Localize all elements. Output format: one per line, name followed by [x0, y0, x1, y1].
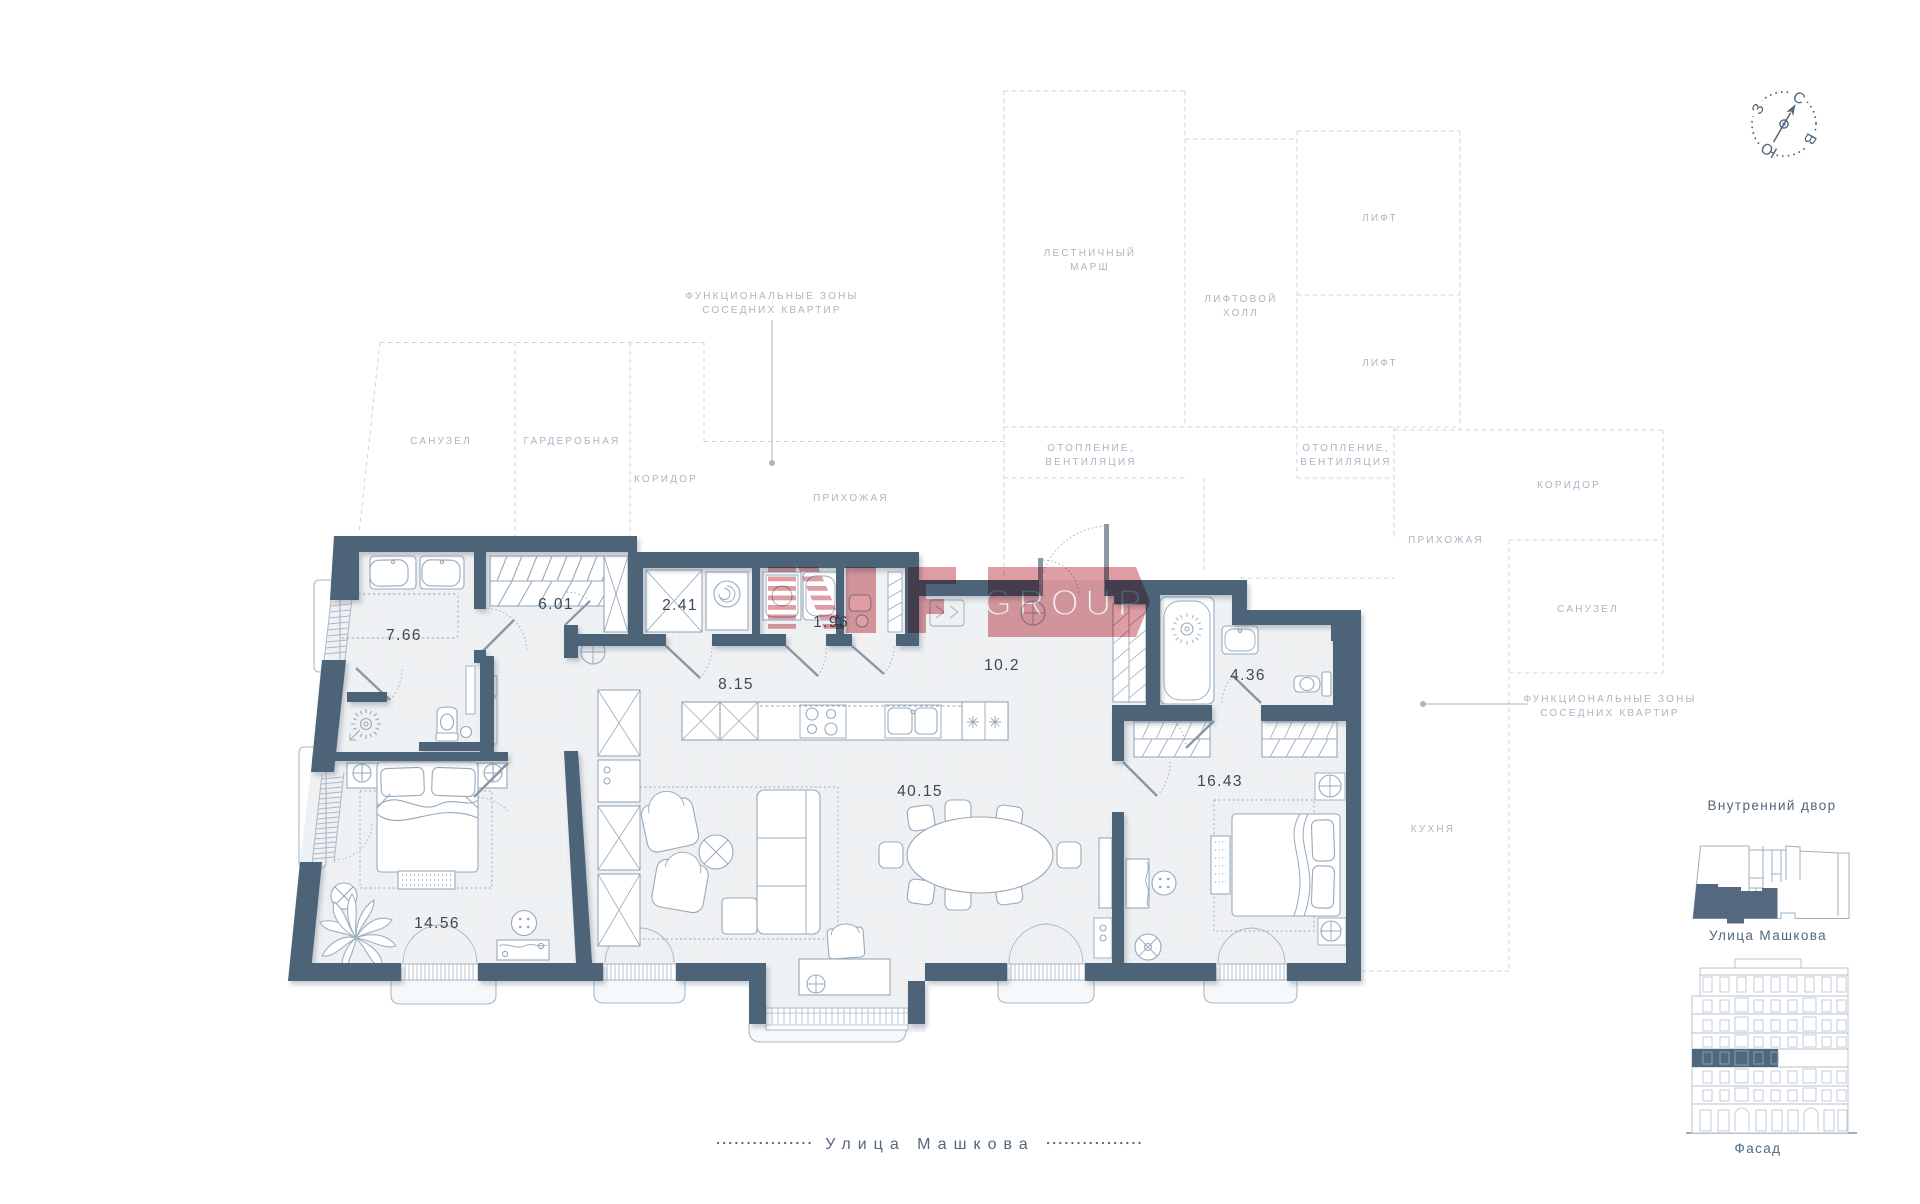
svg-text:ВЕНТИЛЯЦИЯ: ВЕНТИЛЯЦИЯ — [1045, 457, 1136, 468]
svg-text:Внутренний двор: Внутренний двор — [1707, 798, 1836, 813]
svg-text:КОРИДОР: КОРИДОР — [1537, 480, 1601, 491]
svg-text:16.43: 16.43 — [1197, 773, 1243, 790]
svg-text:ЛИФТ: ЛИФТ — [1362, 213, 1398, 224]
svg-text:СОСЕДНИХ КВАРТИР: СОСЕДНИХ КВАРТИР — [702, 305, 842, 316]
svg-text:ЛИФТОВОЙ: ЛИФТОВОЙ — [1204, 292, 1277, 305]
svg-text:14.56: 14.56 — [414, 915, 460, 932]
svg-text:ГАРДЕРОБНАЯ: ГАРДЕРОБНАЯ — [524, 436, 621, 447]
svg-text:САНУЗЕЛ: САНУЗЕЛ — [1557, 604, 1619, 615]
svg-text:ПРИХОЖАЯ: ПРИХОЖАЯ — [813, 493, 889, 504]
svg-text:7.66: 7.66 — [386, 627, 422, 644]
svg-text:ПРИХОЖАЯ: ПРИХОЖАЯ — [1408, 535, 1484, 546]
svg-text:КОРИДОР: КОРИДОР — [634, 474, 698, 485]
svg-text:8.15: 8.15 — [718, 676, 754, 693]
svg-text:КУХНЯ: КУХНЯ — [1411, 824, 1455, 835]
svg-text:С: С — [1790, 88, 1808, 108]
svg-text:ЛИФТ: ЛИФТ — [1362, 358, 1398, 369]
svg-text:Ю: Ю — [1758, 138, 1780, 161]
svg-text:МАРШ: МАРШ — [1070, 262, 1110, 273]
svg-text:2.41: 2.41 — [662, 597, 698, 614]
svg-text:40.15: 40.15 — [897, 783, 943, 800]
svg-text:Фасад: Фасад — [1735, 1141, 1782, 1156]
svg-text:САНУЗЕЛ: САНУЗЕЛ — [410, 436, 472, 447]
svg-text:ФУНКЦИОНАЛЬНЫЕ ЗОНЫ: ФУНКЦИОНАЛЬНЫЕ ЗОНЫ — [685, 291, 858, 302]
svg-text:Улица Машкова: Улица Машкова — [1709, 928, 1827, 943]
svg-text:4.36: 4.36 — [1230, 667, 1266, 684]
svg-text:ЛЕСТНИЧНЫЙ: ЛЕСТНИЧНЫЙ — [1044, 246, 1137, 259]
svg-text:10.2: 10.2 — [984, 657, 1020, 674]
svg-text:ОТОПЛЕНИЕ,: ОТОПЛЕНИЕ, — [1047, 443, 1135, 454]
svg-text:ОТОПЛЕНИЕ,: ОТОПЛЕНИЕ, — [1302, 443, 1390, 454]
svg-text:СОСЕДНИХ КВАРТИР: СОСЕДНИХ КВАРТИР — [1540, 708, 1680, 719]
svg-text:ХОЛЛ: ХОЛЛ — [1223, 308, 1259, 319]
svg-text:ВЕНТИЛЯЦИЯ: ВЕНТИЛЯЦИЯ — [1300, 457, 1391, 468]
svg-text:6.01: 6.01 — [538, 596, 574, 613]
svg-text:Улица Машкова: Улица Машкова — [825, 1136, 1034, 1153]
svg-text:ФУНКЦИОНАЛЬНЫЕ ЗОНЫ: ФУНКЦИОНАЛЬНЫЕ ЗОНЫ — [1523, 694, 1696, 705]
